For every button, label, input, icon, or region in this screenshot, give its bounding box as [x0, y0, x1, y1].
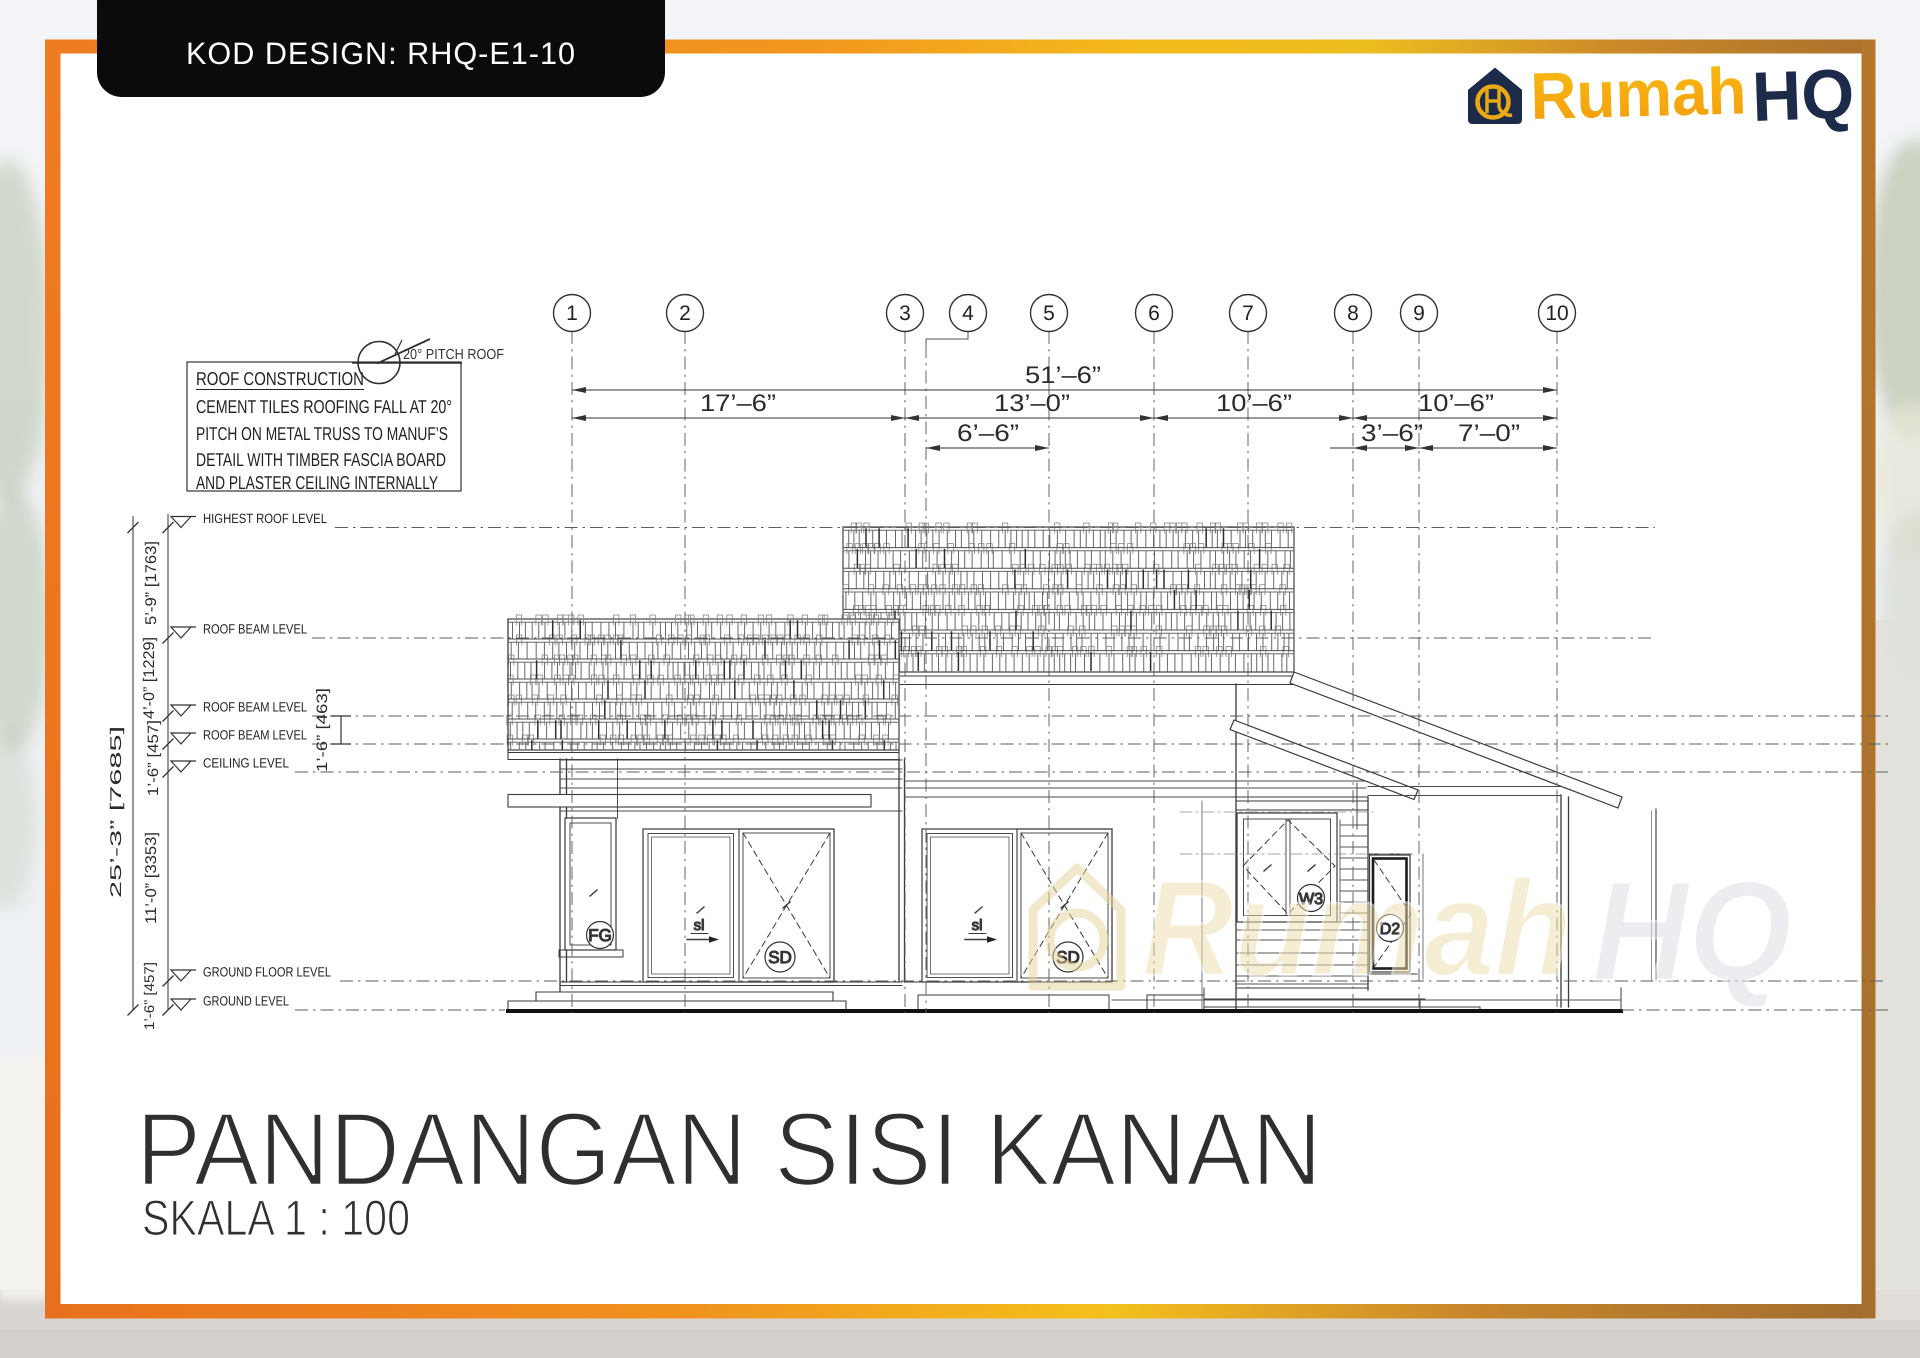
svg-text:9: 9: [1413, 302, 1425, 325]
svg-text:5’-9” [1763]: 5’-9” [1763]: [143, 541, 160, 625]
svg-text:11’-0” [3353]: 11’-0” [3353]: [143, 832, 160, 924]
svg-text:25’-3” [7685]: 25’-3” [7685]: [108, 726, 125, 898]
svg-text:1: 1: [566, 302, 578, 325]
svg-text:ROOF BEAM LEVEL: ROOF BEAM LEVEL: [203, 700, 307, 715]
svg-text:8: 8: [1347, 302, 1359, 325]
svg-text:1’-6” [457]: 1’-6” [457]: [141, 962, 157, 1030]
svg-text:Rumah: Rumah: [1529, 53, 1747, 133]
svg-text:5: 5: [1043, 302, 1055, 325]
svg-text:CEILING LEVEL: CEILING LEVEL: [203, 756, 289, 771]
svg-text:4: 4: [962, 302, 974, 325]
svg-text:GROUND LEVEL: GROUND LEVEL: [203, 994, 289, 1009]
svg-text:Rumah: Rumah: [1142, 852, 1572, 1004]
svg-text:2: 2: [679, 302, 691, 325]
svg-text:1’-6” [463]: 1’-6” [463]: [314, 688, 331, 772]
svg-text:10’–6”: 10’–6”: [1418, 390, 1494, 417]
svg-text:1’-6” [457]: 1’-6” [457]: [145, 720, 162, 796]
svg-text:sl: sl: [694, 917, 705, 934]
svg-text:10’–6”: 10’–6”: [1216, 390, 1292, 417]
svg-text:51’–6”: 51’–6”: [1025, 362, 1101, 389]
svg-text:6’–6”: 6’–6”: [957, 420, 1019, 447]
svg-text:FG: FG: [588, 926, 612, 945]
svg-text:7: 7: [1242, 302, 1254, 325]
svg-text:CEMENT TILES ROOFING FALL AT 2: CEMENT TILES ROOFING FALL AT 20°: [196, 396, 452, 417]
svg-text:ROOF BEAM LEVEL: ROOF BEAM LEVEL: [203, 728, 307, 743]
svg-text:DETAIL WITH TIMBER FASCIA BOAR: DETAIL WITH TIMBER FASCIA BOARD: [196, 449, 446, 470]
svg-text:4’-0” [1229]: 4’-0” [1229]: [141, 637, 158, 719]
svg-text:HQ: HQ: [1592, 852, 1792, 1011]
svg-text:SKALA 1 : 100: SKALA 1 : 100: [142, 1190, 410, 1246]
svg-text:sl: sl: [972, 917, 983, 934]
svg-text:HIGHEST ROOF LEVEL: HIGHEST ROOF LEVEL: [203, 511, 327, 526]
svg-text:17’–6”: 17’–6”: [700, 390, 776, 417]
svg-text:GROUND FLOOR LEVEL: GROUND FLOOR LEVEL: [203, 965, 331, 980]
svg-text:20° PITCH ROOF: 20° PITCH ROOF: [403, 347, 504, 363]
svg-text:ROOF CONSTRUCTION: ROOF CONSTRUCTION: [196, 368, 364, 389]
svg-text:3: 3: [899, 302, 911, 325]
svg-text:SD: SD: [768, 948, 792, 967]
svg-text:6: 6: [1148, 302, 1160, 325]
svg-text:PITCH ON METAL TRUSS TO MANUF’: PITCH ON METAL TRUSS TO MANUF’S: [196, 423, 448, 444]
svg-text:7’–0”: 7’–0”: [1458, 420, 1520, 447]
svg-text:10: 10: [1545, 302, 1568, 325]
svg-text:AND PLASTER CEILING INTERNALLY: AND PLASTER CEILING INTERNALLY: [196, 472, 438, 493]
svg-text:3’–6”: 3’–6”: [1361, 420, 1423, 447]
svg-text:KOD DESIGN: RHQ-E1-10: KOD DESIGN: RHQ-E1-10: [186, 36, 576, 71]
svg-text:HQ: HQ: [1751, 54, 1856, 136]
svg-text:ROOF BEAM LEVEL: ROOF BEAM LEVEL: [203, 622, 307, 637]
svg-text:13’–0”: 13’–0”: [994, 390, 1070, 417]
